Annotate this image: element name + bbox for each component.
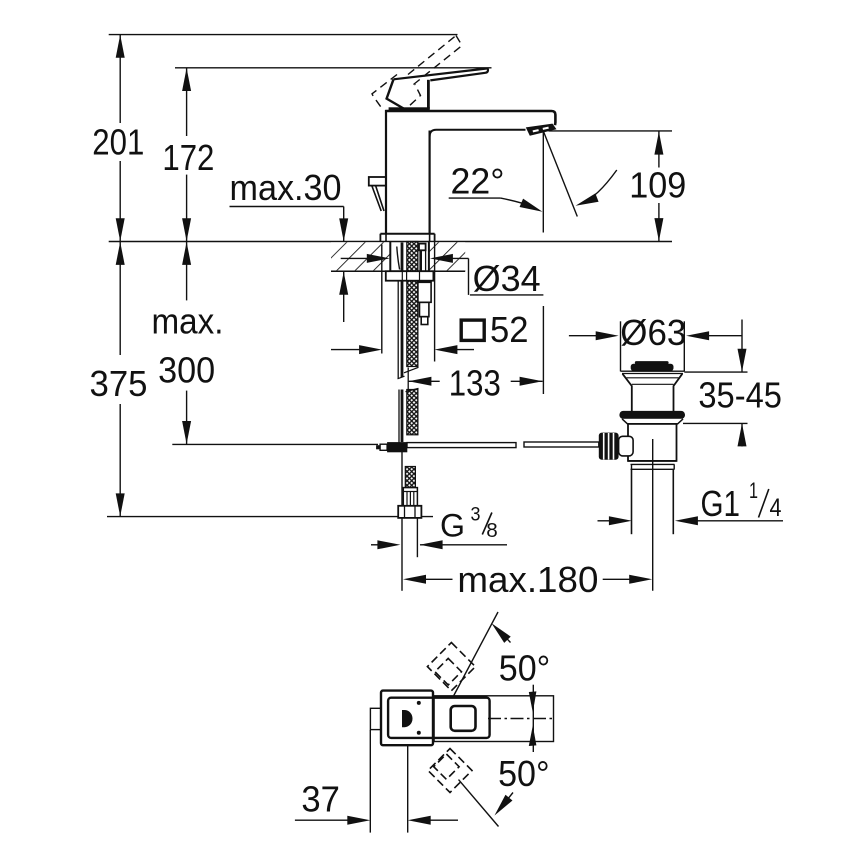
svg-text:4: 4 <box>770 494 782 522</box>
svg-text:3: 3 <box>471 504 481 526</box>
svg-text:max.180: max.180 <box>457 559 598 600</box>
svg-text:1: 1 <box>749 478 758 503</box>
svg-text:Ø34: Ø34 <box>473 258 541 299</box>
svg-text:300: 300 <box>158 350 215 391</box>
svg-text:G: G <box>440 508 465 544</box>
svg-text:52: 52 <box>490 309 529 350</box>
svg-text:109: 109 <box>629 165 686 206</box>
svg-text:37: 37 <box>301 779 340 820</box>
svg-text:133: 133 <box>449 363 501 404</box>
svg-text:35-45: 35-45 <box>698 375 782 416</box>
svg-text:375: 375 <box>90 363 148 404</box>
svg-text:Ø63: Ø63 <box>620 312 686 353</box>
svg-text:22°: 22° <box>451 161 505 202</box>
svg-text:201: 201 <box>92 122 144 163</box>
svg-text:max.30: max.30 <box>230 167 342 208</box>
svg-text:172: 172 <box>162 137 214 178</box>
svg-text:G1: G1 <box>701 483 741 524</box>
svg-text:max.: max. <box>152 301 224 342</box>
svg-text:50°: 50° <box>498 753 549 794</box>
svg-text:50°: 50° <box>499 648 551 689</box>
